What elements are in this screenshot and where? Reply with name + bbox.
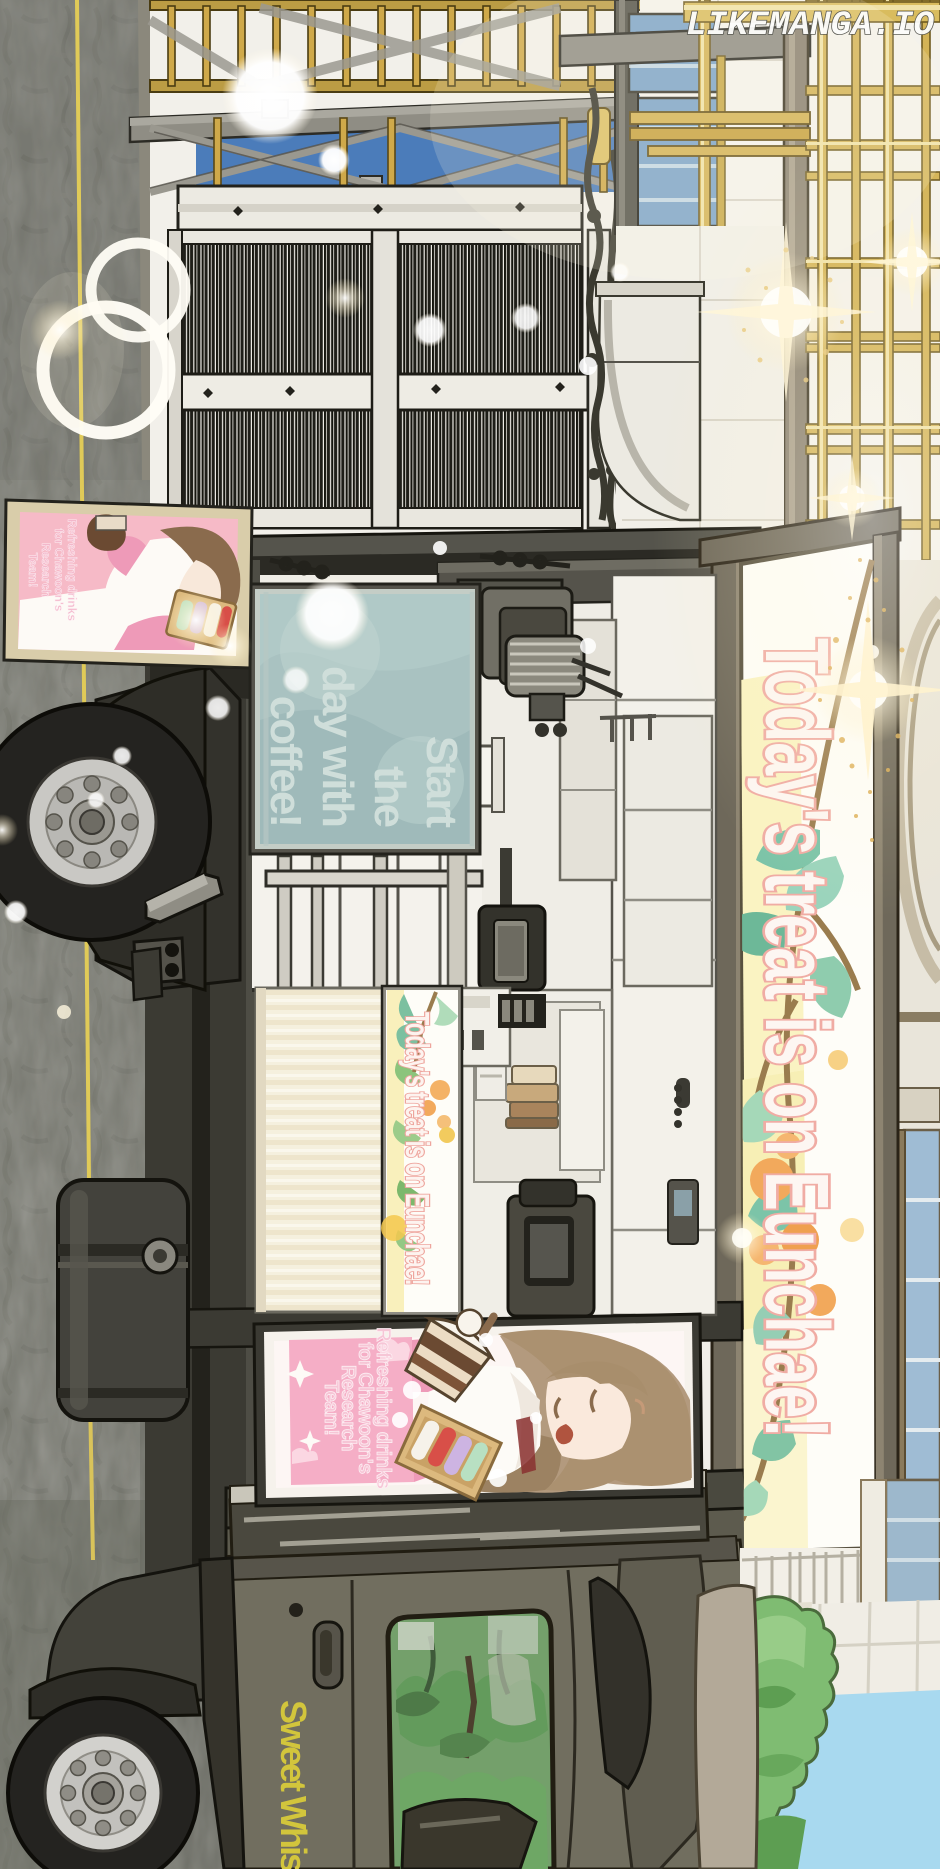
svg-text:Research: Research [39, 543, 53, 597]
svg-text:the: the [365, 766, 414, 827]
svg-text:day with: day with [313, 666, 362, 826]
svg-text:Refreshing drinks: Refreshing drinks [65, 519, 79, 621]
svg-text:Sweet Whisk: Sweet Whisk [273, 1700, 314, 1869]
svg-text:Today's treat is on Eunchae!: Today's treat is on Eunchae! [399, 1012, 436, 1285]
svg-text:Team!: Team! [26, 553, 40, 587]
svg-text:Start: Start [417, 736, 466, 829]
svg-text:LIKEMANGA.IO: LIKEMANGA.IO [686, 7, 935, 45]
svg-text:Team!: Team! [320, 1381, 342, 1436]
svg-text:for Chawoon's: for Chawoon's [52, 529, 66, 612]
